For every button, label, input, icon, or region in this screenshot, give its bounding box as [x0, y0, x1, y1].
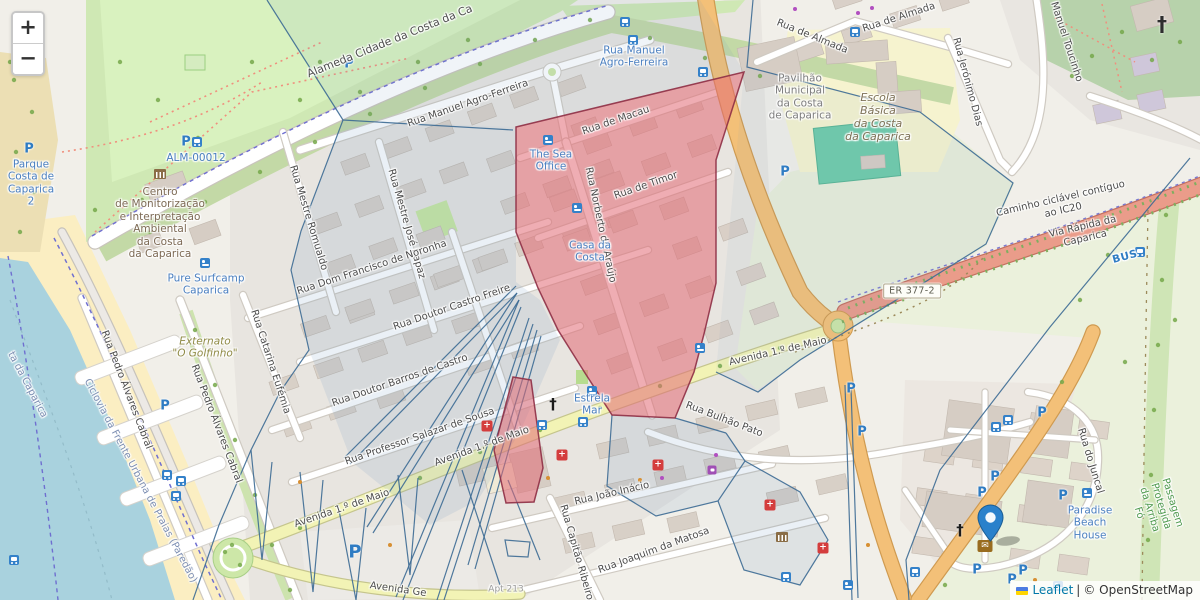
ukraine-flag-icon — [1016, 587, 1028, 595]
overlay-cell — [716, 67, 1013, 392]
overlay-boundary — [338, 505, 366, 600]
overlay-boundary — [251, 450, 272, 560]
overlay-boundary — [300, 472, 323, 592]
overlay-boundary — [505, 540, 530, 557]
marker-pin-icon[interactable] — [978, 505, 1003, 541]
zoom-control: + − — [11, 11, 45, 76]
openstreetmap-link[interactable]: © OpenStreetMap — [1083, 583, 1193, 597]
overlay-boundary — [845, 385, 858, 600]
highlight-polygon — [516, 72, 744, 418]
zoom-out-button[interactable]: − — [13, 44, 43, 74]
attribution-separator: | — [1076, 583, 1080, 597]
route-badge: ER 377-2 — [883, 284, 941, 299]
map-marker[interactable] — [978, 505, 1024, 547]
zoom-in-button[interactable]: + — [13, 13, 43, 43]
leaflet-link[interactable]: Leaflet — [1032, 583, 1073, 597]
attribution-bar: Leaflet|© OpenStreetMap — [1010, 581, 1200, 600]
map-canvas[interactable]: PPPPPPPPPPPPPPP+++++†††✉ Alameda Cidade … — [0, 0, 1200, 600]
marker-pin-dot — [985, 512, 995, 522]
marker-shadow — [995, 535, 1020, 547]
